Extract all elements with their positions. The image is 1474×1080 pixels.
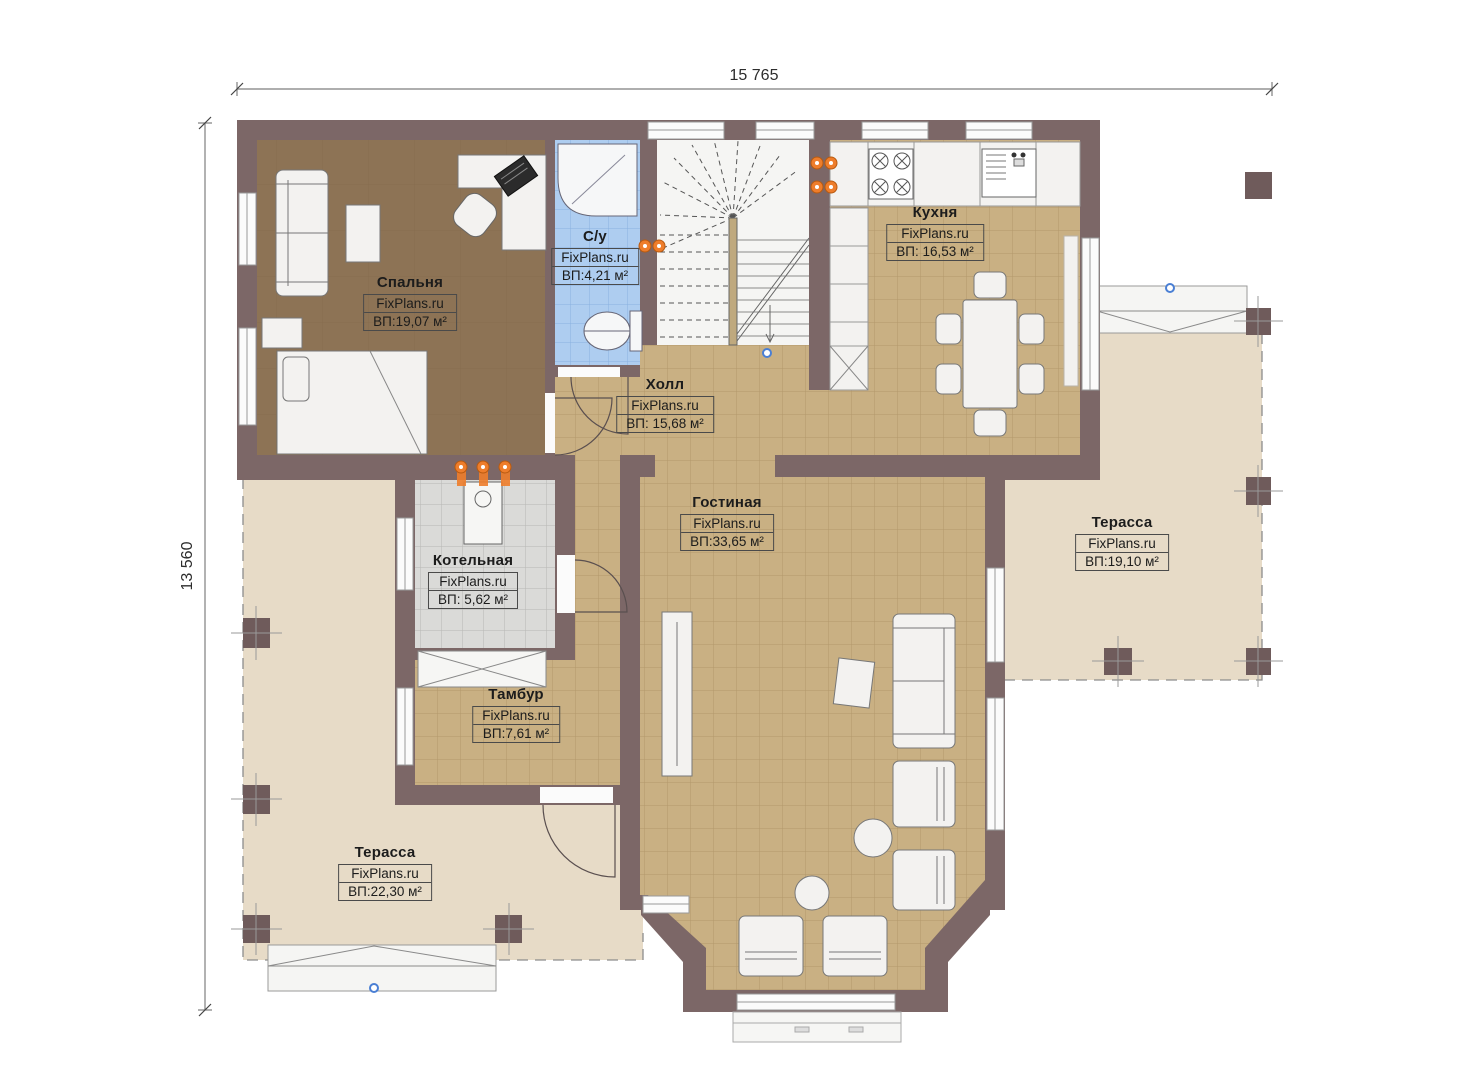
dimension-left-label: 13 560 [179, 541, 196, 590]
room-area: ВП:19,10 м² [1076, 553, 1168, 570]
survey-point-icon [1166, 284, 1174, 292]
room-name: Терасса [1075, 514, 1169, 531]
watermark-link[interactable]: FixPlans.ru [429, 573, 517, 591]
room-label-bedroom: Спальня FixPlans.ru ВП:19,07 м² [363, 274, 457, 331]
room-label-vestibule: Тамбур FixPlans.ru ВП:7,61 м² [472, 686, 560, 743]
room-info-box: FixPlans.ru ВП: 15,68 м² [616, 396, 714, 433]
pillow [283, 357, 309, 401]
nightstand [262, 318, 302, 348]
corridor-floor [575, 455, 620, 660]
room-name: Тамбур [472, 686, 560, 703]
terrace-steps-left [268, 945, 496, 992]
watermark-link[interactable]: FixPlans.ru [364, 295, 456, 313]
side-table [854, 819, 892, 857]
watermark-link[interactable]: FixPlans.ru [681, 515, 773, 533]
room-info-box: FixPlans.ru ВП:4,21 м² [551, 248, 639, 285]
armchair [823, 916, 887, 976]
room-name: Котельная [428, 552, 518, 569]
room-name: Спальня [363, 274, 457, 291]
toilet-tank [630, 311, 642, 351]
side-table [795, 876, 829, 910]
watermark-link[interactable]: FixPlans.ru [339, 865, 431, 883]
armchair [893, 761, 955, 827]
room-info-box: FixPlans.ru ВП: 16,53 м² [886, 224, 984, 261]
room-label-terrace-left: Терасса FixPlans.ru ВП:22,30 м² [338, 844, 432, 901]
room-area: ВП:4,21 м² [552, 267, 638, 284]
dimension-left: 13 560 [179, 117, 212, 1016]
survey-point-icon [370, 984, 378, 992]
room-label-living: Гостиная FixPlans.ru ВП:33,65 м² [680, 494, 774, 551]
room-name: Холл [616, 376, 714, 393]
room-area: ВП:7,61 м² [473, 725, 559, 742]
room-label-bathroom: С/у FixPlans.ru ВП:4,21 м² [551, 228, 639, 285]
armchair [739, 916, 803, 976]
dimension-top-label: 15 765 [730, 67, 779, 84]
room-info-box: FixPlans.ru ВП:33,65 м² [680, 514, 774, 551]
watermark-link[interactable]: FixPlans.ru [473, 707, 559, 725]
room-info-box: FixPlans.ru ВП:22,30 м² [338, 864, 432, 901]
watermark-link[interactable]: FixPlans.ru [552, 249, 638, 267]
room-name: Терасса [338, 844, 432, 861]
room-label-boiler: Котельная FixPlans.ru ВП: 5,62 м² [428, 552, 518, 609]
watermark-link[interactable]: FixPlans.ru [887, 225, 983, 243]
bay-steps [733, 1012, 901, 1042]
survey-point-icon [763, 349, 771, 357]
room-area: ВП:19,07 м² [364, 313, 456, 330]
watermark-link[interactable]: FixPlans.ru [1076, 535, 1168, 553]
watermark-link[interactable]: FixPlans.ru [617, 397, 713, 415]
tv-stand [833, 658, 874, 708]
room-area: ВП: 15,68 м² [617, 415, 713, 432]
room-name: С/у [551, 228, 639, 245]
room-area: ВП:22,30 м² [339, 883, 431, 900]
room-area: ВП:33,65 м² [681, 533, 773, 550]
hall-living-opening [655, 455, 775, 480]
floor-plan: 15 765 13 560 [0, 0, 1474, 1080]
room-label-terrace-right: Терасса FixPlans.ru ВП:19,10 м² [1075, 514, 1169, 571]
terrace-steps-right [1097, 284, 1247, 333]
room-info-box: FixPlans.ru ВП:19,07 м² [363, 294, 457, 331]
coffee-table [346, 205, 380, 262]
room-name: Кухня [886, 204, 984, 221]
room-area: ВП: 5,62 м² [429, 591, 517, 608]
room-info-box: FixPlans.ru ВП:19,10 м² [1075, 534, 1169, 571]
dimension-top: 15 765 [231, 67, 1278, 96]
room-label-kitchen: Кухня FixPlans.ru ВП: 16,53 м² [886, 204, 984, 261]
room-info-box: FixPlans.ru ВП: 5,62 м² [428, 572, 518, 609]
dining-table [963, 300, 1017, 408]
room-info-box: FixPlans.ru ВП:7,61 м² [472, 706, 560, 743]
armchair [893, 850, 955, 910]
room-name: Гостиная [680, 494, 774, 511]
room-label-hall: Холл FixPlans.ru ВП: 15,68 м² [616, 376, 714, 433]
room-area: ВП: 16,53 м² [887, 243, 983, 260]
